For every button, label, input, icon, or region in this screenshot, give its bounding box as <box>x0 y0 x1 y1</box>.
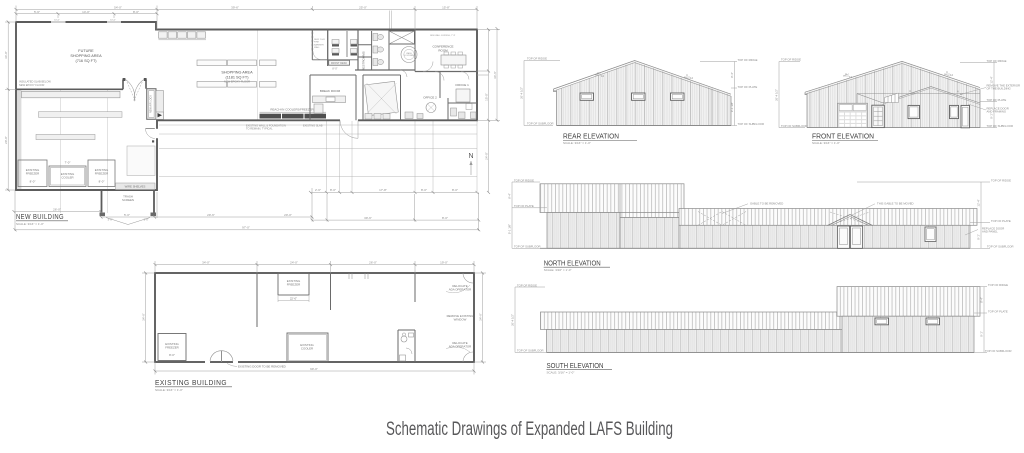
svg-text:34'-6": 34'-6" <box>142 313 146 321</box>
svg-text:SCALE: 3/16" = 1'-0": SCALE: 3/16" = 1'-0" <box>155 388 183 392</box>
svg-text:26'-4 1/2": 26'-4 1/2" <box>520 87 524 99</box>
svg-text:BREAK ROOM: BREAK ROOM <box>320 89 341 93</box>
svg-text:TOP OF RIDGE: TOP OF RIDGE <box>517 283 537 287</box>
svg-text:SCALE: 3/16" = 1'-0": SCALE: 3/16" = 1'-0" <box>16 222 44 226</box>
svg-text:ADA OPERATOR: ADA OPERATOR <box>449 288 472 292</box>
svg-text:26'-4 1/2": 26'-4 1/2" <box>775 89 779 101</box>
svg-text:TOP OF SUBFLOOR: TOP OF SUBFLOOR <box>987 124 1013 128</box>
svg-text:TOP OF SUBFLOOR: TOP OF SUBFLOOR <box>987 245 1013 249</box>
svg-text:3'-6": 3'-6" <box>144 218 149 221</box>
svg-text:9'-1 1/8": 9'-1 1/8" <box>508 224 512 234</box>
svg-text:8'-0": 8'-0" <box>169 353 175 357</box>
svg-text:TOP OF RIDGE: TOP OF RIDGE <box>987 59 1007 63</box>
svg-text:34'-6": 34'-6" <box>479 313 483 321</box>
svg-text:THIS GABLE TO BE MOVED: THIS GABLE TO BE MOVED <box>877 202 914 206</box>
svg-text:12: 12 <box>690 76 694 80</box>
svg-text:3'-6": 3'-6" <box>108 218 113 221</box>
svg-text:TOP OF RIDGE: TOP OF RIDGE <box>988 283 1008 287</box>
svg-text:RESTROOMS: RESTROOMS <box>362 51 366 70</box>
svg-text:8'-0": 8'-0" <box>99 180 105 184</box>
svg-text:12: 12 <box>601 74 605 78</box>
svg-text:FRONT DESK: FRONT DESK <box>331 62 347 65</box>
svg-text:17'-8": 17'-8" <box>379 188 387 192</box>
svg-text:99'-0": 99'-0" <box>310 367 318 371</box>
svg-text:8'-0": 8'-0" <box>421 188 427 192</box>
svg-text:4: 4 <box>686 73 688 77</box>
svg-text:8'-0": 8'-0" <box>332 66 337 70</box>
svg-text:AND PANEL: AND PANEL <box>982 230 998 234</box>
svg-text:WALL: WALL <box>314 46 321 49</box>
svg-text:8'-4": 8'-4" <box>508 193 512 199</box>
svg-text:FIRE: FIRE <box>314 42 320 44</box>
svg-text:12: 12 <box>950 73 954 77</box>
svg-text:SCREEN: SCREEN <box>122 198 134 202</box>
svg-text:NEW AIR LOCK: NEW AIR LOCK <box>150 95 153 113</box>
svg-text:AND FRAMING: AND FRAMING <box>987 110 1007 114</box>
svg-text:8'-0": 8'-0" <box>452 188 458 192</box>
svg-text:8'-0": 8'-0" <box>330 188 336 192</box>
svg-text:29'-6": 29'-6" <box>207 213 215 217</box>
svg-text:24'-0": 24'-0" <box>290 261 298 265</box>
svg-text:TOP OF PLATE: TOP OF PLATE <box>738 85 758 89</box>
svg-text:EXISTING SLAB: EXISTING SLAB <box>303 123 323 127</box>
svg-text:20'-0": 20'-0" <box>4 136 8 144</box>
svg-text:REAR ELEVATION: REAR ELEVATION <box>563 134 619 141</box>
svg-text:TOP OF RIDGE: TOP OF RIDGE <box>514 178 534 182</box>
svg-text:GABLE TO BE REMOVED: GABLE TO BE REMOVED <box>750 202 783 206</box>
svg-text:TOP OF SUBFLOOR: TOP OF SUBFLOOR <box>985 349 1011 353</box>
svg-text:TOP OF PLATE: TOP OF PLATE <box>991 219 1011 223</box>
svg-text:9'-1 1/8": 9'-1 1/8" <box>730 102 734 112</box>
svg-text:9'-1": 9'-1" <box>977 234 981 240</box>
svg-text:(716 SQ FT): (716 SQ FT) <box>75 59 97 63</box>
svg-text:9'-1": 9'-1" <box>990 113 994 119</box>
svg-text:4: 4 <box>845 72 847 76</box>
svg-text:TOP OF RIDGE: TOP OF RIDGE <box>781 58 801 62</box>
svg-text:12'-4": 12'-4" <box>990 76 994 83</box>
svg-text:FREEZER: FREEZER <box>165 346 179 350</box>
svg-text:34'-6": 34'-6" <box>493 71 497 79</box>
svg-text:FRONT ELEVATION: FRONT ELEVATION <box>812 134 874 141</box>
svg-text:FUTURE: FUTURE <box>78 49 94 53</box>
svg-text:TOP OF RIDGE: TOP OF RIDGE <box>738 58 758 62</box>
svg-text:SCALE: 3/16" = 1'-0": SCALE: 3/16" = 1'-0" <box>812 141 840 145</box>
svg-text:TOP OF PLATE: TOP OF PLATE <box>514 204 534 208</box>
svg-text:54'-0": 54'-0" <box>114 5 122 9</box>
svg-text:TOP OF RIDGE: TOP OF RIDGE <box>527 57 547 61</box>
svg-text:SCALE: 3/16" = 1'-0": SCALE: 3/16" = 1'-0" <box>563 141 591 145</box>
svg-text:20'-0": 20'-0" <box>284 213 292 217</box>
svg-text:34'-0": 34'-0" <box>4 51 8 59</box>
svg-text:NEW EPOXY FLOOR: NEW EPOXY FLOOR <box>224 80 250 84</box>
svg-text:7'-0": 7'-0" <box>65 161 71 165</box>
svg-text:24'-0": 24'-0" <box>484 152 488 160</box>
svg-text:12'-4": 12'-4" <box>977 199 981 206</box>
svg-text:39'-6": 39'-6" <box>231 5 239 9</box>
svg-text:COOLER: COOLER <box>61 176 73 180</box>
svg-text:NEW 2-HR: NEW 2-HR <box>314 39 325 41</box>
svg-text:TO REMAIN, TYPICAL: TO REMAIN, TYPICAL <box>246 126 273 130</box>
svg-text:NEW EPOXY FLOOR: NEW EPOXY FLOOR <box>19 83 44 87</box>
svg-text:WINDOW: WINDOW <box>454 318 467 322</box>
svg-text:15'-8": 15'-8" <box>442 5 450 9</box>
svg-text:FREEZER: FREEZER <box>287 283 301 287</box>
svg-text:SHOPPING AREA: SHOPPING AREA <box>70 54 102 58</box>
svg-text:39'-6": 39'-6" <box>364 216 372 220</box>
svg-text:8'-4": 8'-4" <box>730 72 734 78</box>
svg-text:COOLER: COOLER <box>301 347 313 351</box>
svg-text:EXISTING BUILDING: EXISTING BUILDING <box>155 378 227 387</box>
svg-text:NEW WALL FURRING, TYP: NEW WALL FURRING, TYP <box>430 34 456 37</box>
svg-text:(1181 SQ FT): (1181 SQ FT) <box>226 76 250 80</box>
svg-text:TOP OF SUBFLOOR: TOP OF SUBFLOOR <box>514 245 540 249</box>
svg-text:BARRIER: BARRIER <box>314 43 324 46</box>
svg-text:FREEZER: FREEZER <box>95 172 109 176</box>
svg-text:15'-0": 15'-0" <box>484 93 488 101</box>
svg-text:SOUTH ELEVATION: SOUTH ELEVATION <box>547 363 604 370</box>
svg-text:FOUNTAIN: FOUNTAIN <box>404 54 414 57</box>
svg-text:8'-0": 8'-0" <box>442 216 448 220</box>
svg-text:NEW BUILDING: NEW BUILDING <box>16 212 64 221</box>
svg-text:19'-0": 19'-0" <box>440 261 448 265</box>
svg-text:SCALE: 3/16" = 1'-0": SCALE: 3/16" = 1'-0" <box>544 268 572 272</box>
svg-text:22'-0": 22'-0" <box>290 297 297 301</box>
svg-text:TOP OF SUBFLOOR: TOP OF SUBFLOOR <box>738 122 764 126</box>
svg-text:8'-0": 8'-0" <box>133 10 139 14</box>
svg-text:25'-0": 25'-0" <box>359 5 367 9</box>
svg-text:10'-0": 10'-0" <box>54 20 60 22</box>
svg-text:TOP OF PLATE: TOP OF PLATE <box>988 310 1008 314</box>
svg-text:5'-6": 5'-6" <box>34 10 40 14</box>
svg-text:10'-0": 10'-0" <box>110 20 116 22</box>
svg-text:EXISTING DOOR TO BE REMOVED: EXISTING DOOR TO BE REMOVED <box>238 365 286 369</box>
svg-text:2'-6": 2'-6" <box>315 188 321 192</box>
svg-text:8'-4": 8'-4" <box>980 297 984 303</box>
svg-text:Schematic Drawings of Expanded: Schematic Drawings of Expanded LAFS Buil… <box>386 419 673 440</box>
svg-text:FREEZER: FREEZER <box>26 172 40 176</box>
svg-text:REACH-IN COOLERS/FREEZERS: REACH-IN COOLERS/FREEZERS <box>270 108 315 112</box>
svg-text:34'-0": 34'-0" <box>202 261 210 265</box>
svg-text:OFFICE 2: OFFICE 2 <box>423 96 437 100</box>
svg-text:5'-0": 5'-0" <box>124 213 130 217</box>
svg-text:OFFICE 1: OFFICE 1 <box>455 83 469 87</box>
svg-text:26'-0": 26'-0" <box>369 261 377 265</box>
svg-text:TOP OF SUBFLOOR: TOP OF SUBFLOOR <box>517 349 543 353</box>
svg-text:TOP OF RIDGE: TOP OF RIDGE <box>991 178 1011 182</box>
svg-text:N: N <box>468 153 473 160</box>
svg-text:ADA OPERATOR: ADA OPERATOR <box>449 345 472 349</box>
svg-text:8'-0": 8'-0" <box>30 180 36 184</box>
svg-text:TOP OF SUBFLOOR: TOP OF SUBFLOOR <box>781 124 807 128</box>
svg-text:OF THE BUILDING: OF THE BUILDING <box>987 87 1011 91</box>
svg-text:TOP OF SUBFLOOR: TOP OF SUBFLOOR <box>527 122 553 126</box>
svg-text:WIRE SHELVES: WIRE SHELVES <box>125 185 146 189</box>
svg-text:14'-0": 14'-0" <box>82 10 90 14</box>
svg-text:97'-0": 97'-0" <box>242 226 250 230</box>
svg-text:ROOM: ROOM <box>438 49 448 53</box>
svg-text:12: 12 <box>849 75 853 79</box>
svg-text:NORTH ELEVATION: NORTH ELEVATION <box>544 261 601 268</box>
svg-text:TOP OF PLATE: TOP OF PLATE <box>987 98 1007 102</box>
svg-text:26'-0": 26'-0" <box>53 208 61 212</box>
svg-text:9'-1": 9'-1" <box>980 331 984 337</box>
svg-text:26'-4 1/2": 26'-4 1/2" <box>511 314 515 326</box>
svg-text:SHOPPING AREA: SHOPPING AREA <box>221 71 253 75</box>
svg-text:4: 4 <box>946 70 948 74</box>
svg-text:SCALE: 3/16" = 1'-0": SCALE: 3/16" = 1'-0" <box>547 371 575 375</box>
